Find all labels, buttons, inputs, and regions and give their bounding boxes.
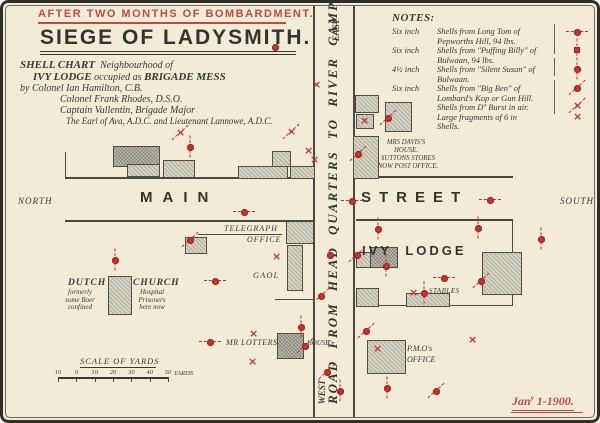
- shell-dot-icon: [298, 324, 305, 331]
- shell-dot-icon: [272, 44, 279, 51]
- shell-cross-icon: ×: [287, 126, 296, 137]
- shell-dot-icon: [207, 339, 214, 346]
- shell-dot-icon: [574, 29, 581, 36]
- shell-dot-icon: [187, 237, 194, 244]
- shell-cross-icon: ×: [360, 115, 369, 126]
- shell-dot-icon: [375, 226, 382, 233]
- shell-dot-icon: [302, 343, 309, 350]
- shell-cross-icon: ×: [373, 343, 382, 354]
- shell-dot-icon: [574, 85, 581, 92]
- shell-dot-icon: [324, 369, 331, 376]
- shell-marker-layer: ××××××××××××××: [0, 0, 600, 423]
- shell-cross-icon: ×: [573, 111, 582, 122]
- shell-dot-icon: [383, 263, 390, 270]
- shell-dot-icon: [433, 388, 440, 395]
- shell-cross-icon: ×: [249, 328, 258, 339]
- shell-dot-icon: [187, 144, 194, 151]
- shell-dot-icon: [478, 278, 485, 285]
- shell-dot-icon: [421, 290, 428, 297]
- shell-cross-icon: ×: [310, 154, 319, 165]
- shell-dot-icon: [337, 388, 344, 395]
- shell-dot-icon: [385, 115, 392, 122]
- shell-dot-icon: [441, 275, 448, 282]
- shell-dot-icon: [354, 252, 361, 259]
- shell-dot-icon: [355, 151, 362, 158]
- shell-cross-icon: ×: [409, 287, 418, 298]
- shell-dot-icon: [363, 328, 370, 335]
- shell-dot-icon: [318, 293, 325, 300]
- shell-chart-map: AFTER TWO MONTHS OF BOMBARDMENT. SIEGE O…: [0, 0, 600, 423]
- shell-cross-icon: ×: [272, 251, 281, 262]
- shell-dot-icon: [574, 66, 581, 73]
- shell-square-icon: [574, 47, 580, 53]
- shell-cross-icon: ×: [248, 356, 257, 367]
- shell-cross-icon: ×: [468, 334, 477, 345]
- shell-dot-icon: [475, 225, 482, 232]
- shell-dot-icon: [487, 197, 494, 204]
- shell-dot-icon: [538, 236, 545, 243]
- shell-dot-icon: [327, 252, 334, 259]
- shell-cross-icon: ×: [312, 79, 321, 90]
- shell-dot-icon: [241, 209, 248, 216]
- shell-dot-icon: [349, 198, 356, 205]
- shell-cross-icon: ×: [176, 127, 185, 138]
- shell-dot-icon: [384, 385, 391, 392]
- shell-dot-icon: [212, 278, 219, 285]
- shell-dot-icon: [112, 257, 119, 264]
